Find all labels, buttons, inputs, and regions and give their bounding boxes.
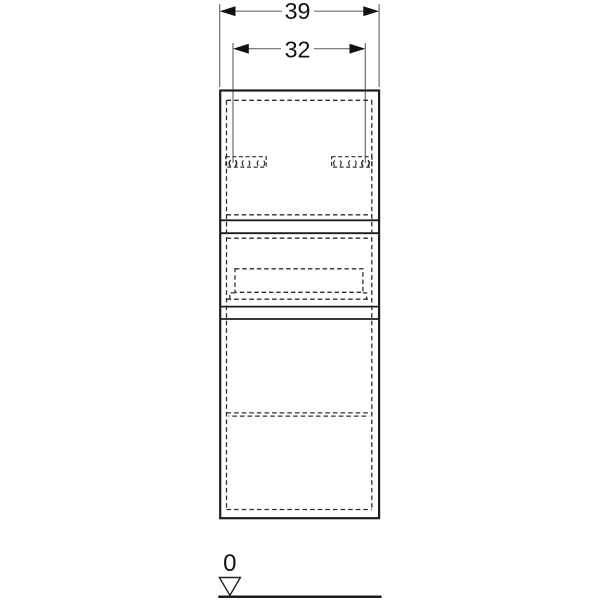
svg-text:32: 32 — [285, 37, 311, 63]
svg-text:39: 39 — [285, 0, 311, 24]
svg-text:0: 0 — [223, 550, 236, 577]
